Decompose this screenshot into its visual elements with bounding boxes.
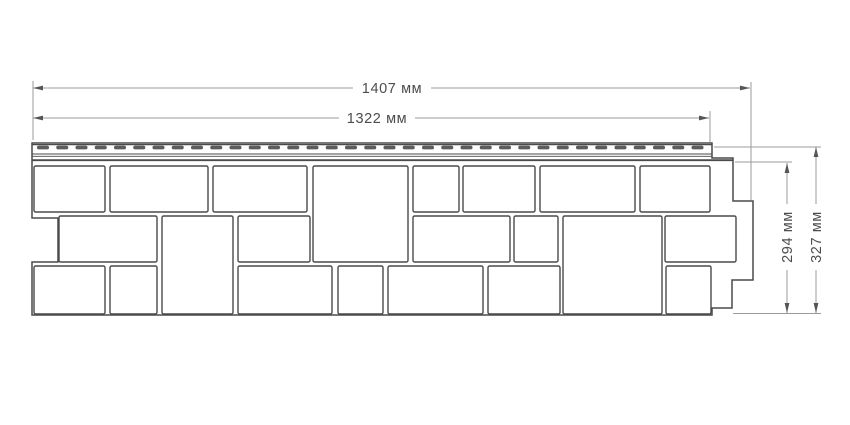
stone-block <box>388 266 483 314</box>
nail-slot <box>692 146 704 150</box>
nail-slot <box>345 146 357 150</box>
nail-slot <box>518 146 530 150</box>
nail-slot <box>672 146 684 150</box>
nail-slot <box>576 146 588 150</box>
drawing-canvas: 1407 мм 1322 мм 294 мм 327 мм <box>0 0 850 425</box>
arrowhead-right <box>740 86 750 91</box>
dimension-label-useful-height: 294 мм <box>780 211 796 263</box>
stone-block <box>413 216 510 262</box>
stone-block <box>488 266 560 314</box>
stone-block <box>213 166 307 212</box>
stone-block <box>238 266 332 314</box>
nail-slot <box>384 146 396 150</box>
nail-slot <box>56 146 68 150</box>
arrowhead-right <box>699 116 709 121</box>
nail-slot <box>595 146 607 150</box>
stone-block <box>110 166 208 212</box>
nail-slot <box>326 146 338 150</box>
stone-block <box>666 266 711 314</box>
nail-slot <box>364 146 376 150</box>
nail-slot <box>114 146 126 150</box>
nail-slot <box>76 146 88 150</box>
nail-slot <box>403 146 415 150</box>
stone-block <box>238 216 310 262</box>
nail-slot <box>441 146 453 150</box>
stone-block <box>34 266 105 314</box>
nail-slot <box>615 146 627 150</box>
stone-block <box>162 216 233 314</box>
arrowhead-left <box>33 116 43 121</box>
nail-slot <box>153 146 165 150</box>
nail-slot <box>95 146 107 150</box>
facade-panel-drawing: 1407 мм 1322 мм 294 мм 327 мм <box>0 0 850 425</box>
stone-block <box>59 216 157 262</box>
nail-slot <box>133 146 145 150</box>
stone-block <box>463 166 535 212</box>
nail-slot-row <box>37 146 704 150</box>
nail-slot <box>499 146 511 150</box>
nail-slot <box>191 146 203 150</box>
arrowhead-bottom <box>814 303 819 313</box>
nail-slot <box>422 146 434 150</box>
nail-slot <box>653 146 665 150</box>
stone-block <box>514 216 558 262</box>
dimension-total-width: 1407 мм <box>33 81 750 98</box>
stone-block <box>640 166 710 212</box>
dimension-total-height: 327 мм <box>809 147 826 313</box>
stone-block <box>313 166 408 262</box>
nail-slot <box>37 146 49 150</box>
dimension-label-total-width: 1407 мм <box>362 81 422 97</box>
dimension-useful-height: 294 мм <box>780 163 797 313</box>
arrowhead-left <box>33 86 43 91</box>
dimension-label-total-height: 327 мм <box>809 211 825 263</box>
nail-slot <box>634 146 646 150</box>
nail-slot <box>268 146 280 150</box>
stone-block <box>665 216 736 262</box>
nail-slot <box>461 146 473 150</box>
nail-slot <box>557 146 569 150</box>
nail-slot <box>172 146 184 150</box>
stone-block <box>540 166 635 212</box>
nail-slot <box>287 146 299 150</box>
stone-block <box>34 166 105 212</box>
nail-slot <box>538 146 550 150</box>
arrowhead-bottom <box>785 303 790 313</box>
nail-slot <box>230 146 242 150</box>
stone-block <box>110 266 157 314</box>
dimension-label-useful-width: 1322 мм <box>347 111 407 127</box>
arrowhead-top <box>785 163 790 173</box>
stone-block <box>413 166 459 212</box>
stone-block <box>338 266 383 314</box>
nail-slot <box>480 146 492 150</box>
arrowhead-top <box>814 147 819 157</box>
dimension-useful-width: 1322 мм <box>33 111 709 128</box>
nail-slot <box>307 146 319 150</box>
stone-block <box>563 216 662 314</box>
nail-slot <box>249 146 261 150</box>
nail-slot <box>210 146 222 150</box>
